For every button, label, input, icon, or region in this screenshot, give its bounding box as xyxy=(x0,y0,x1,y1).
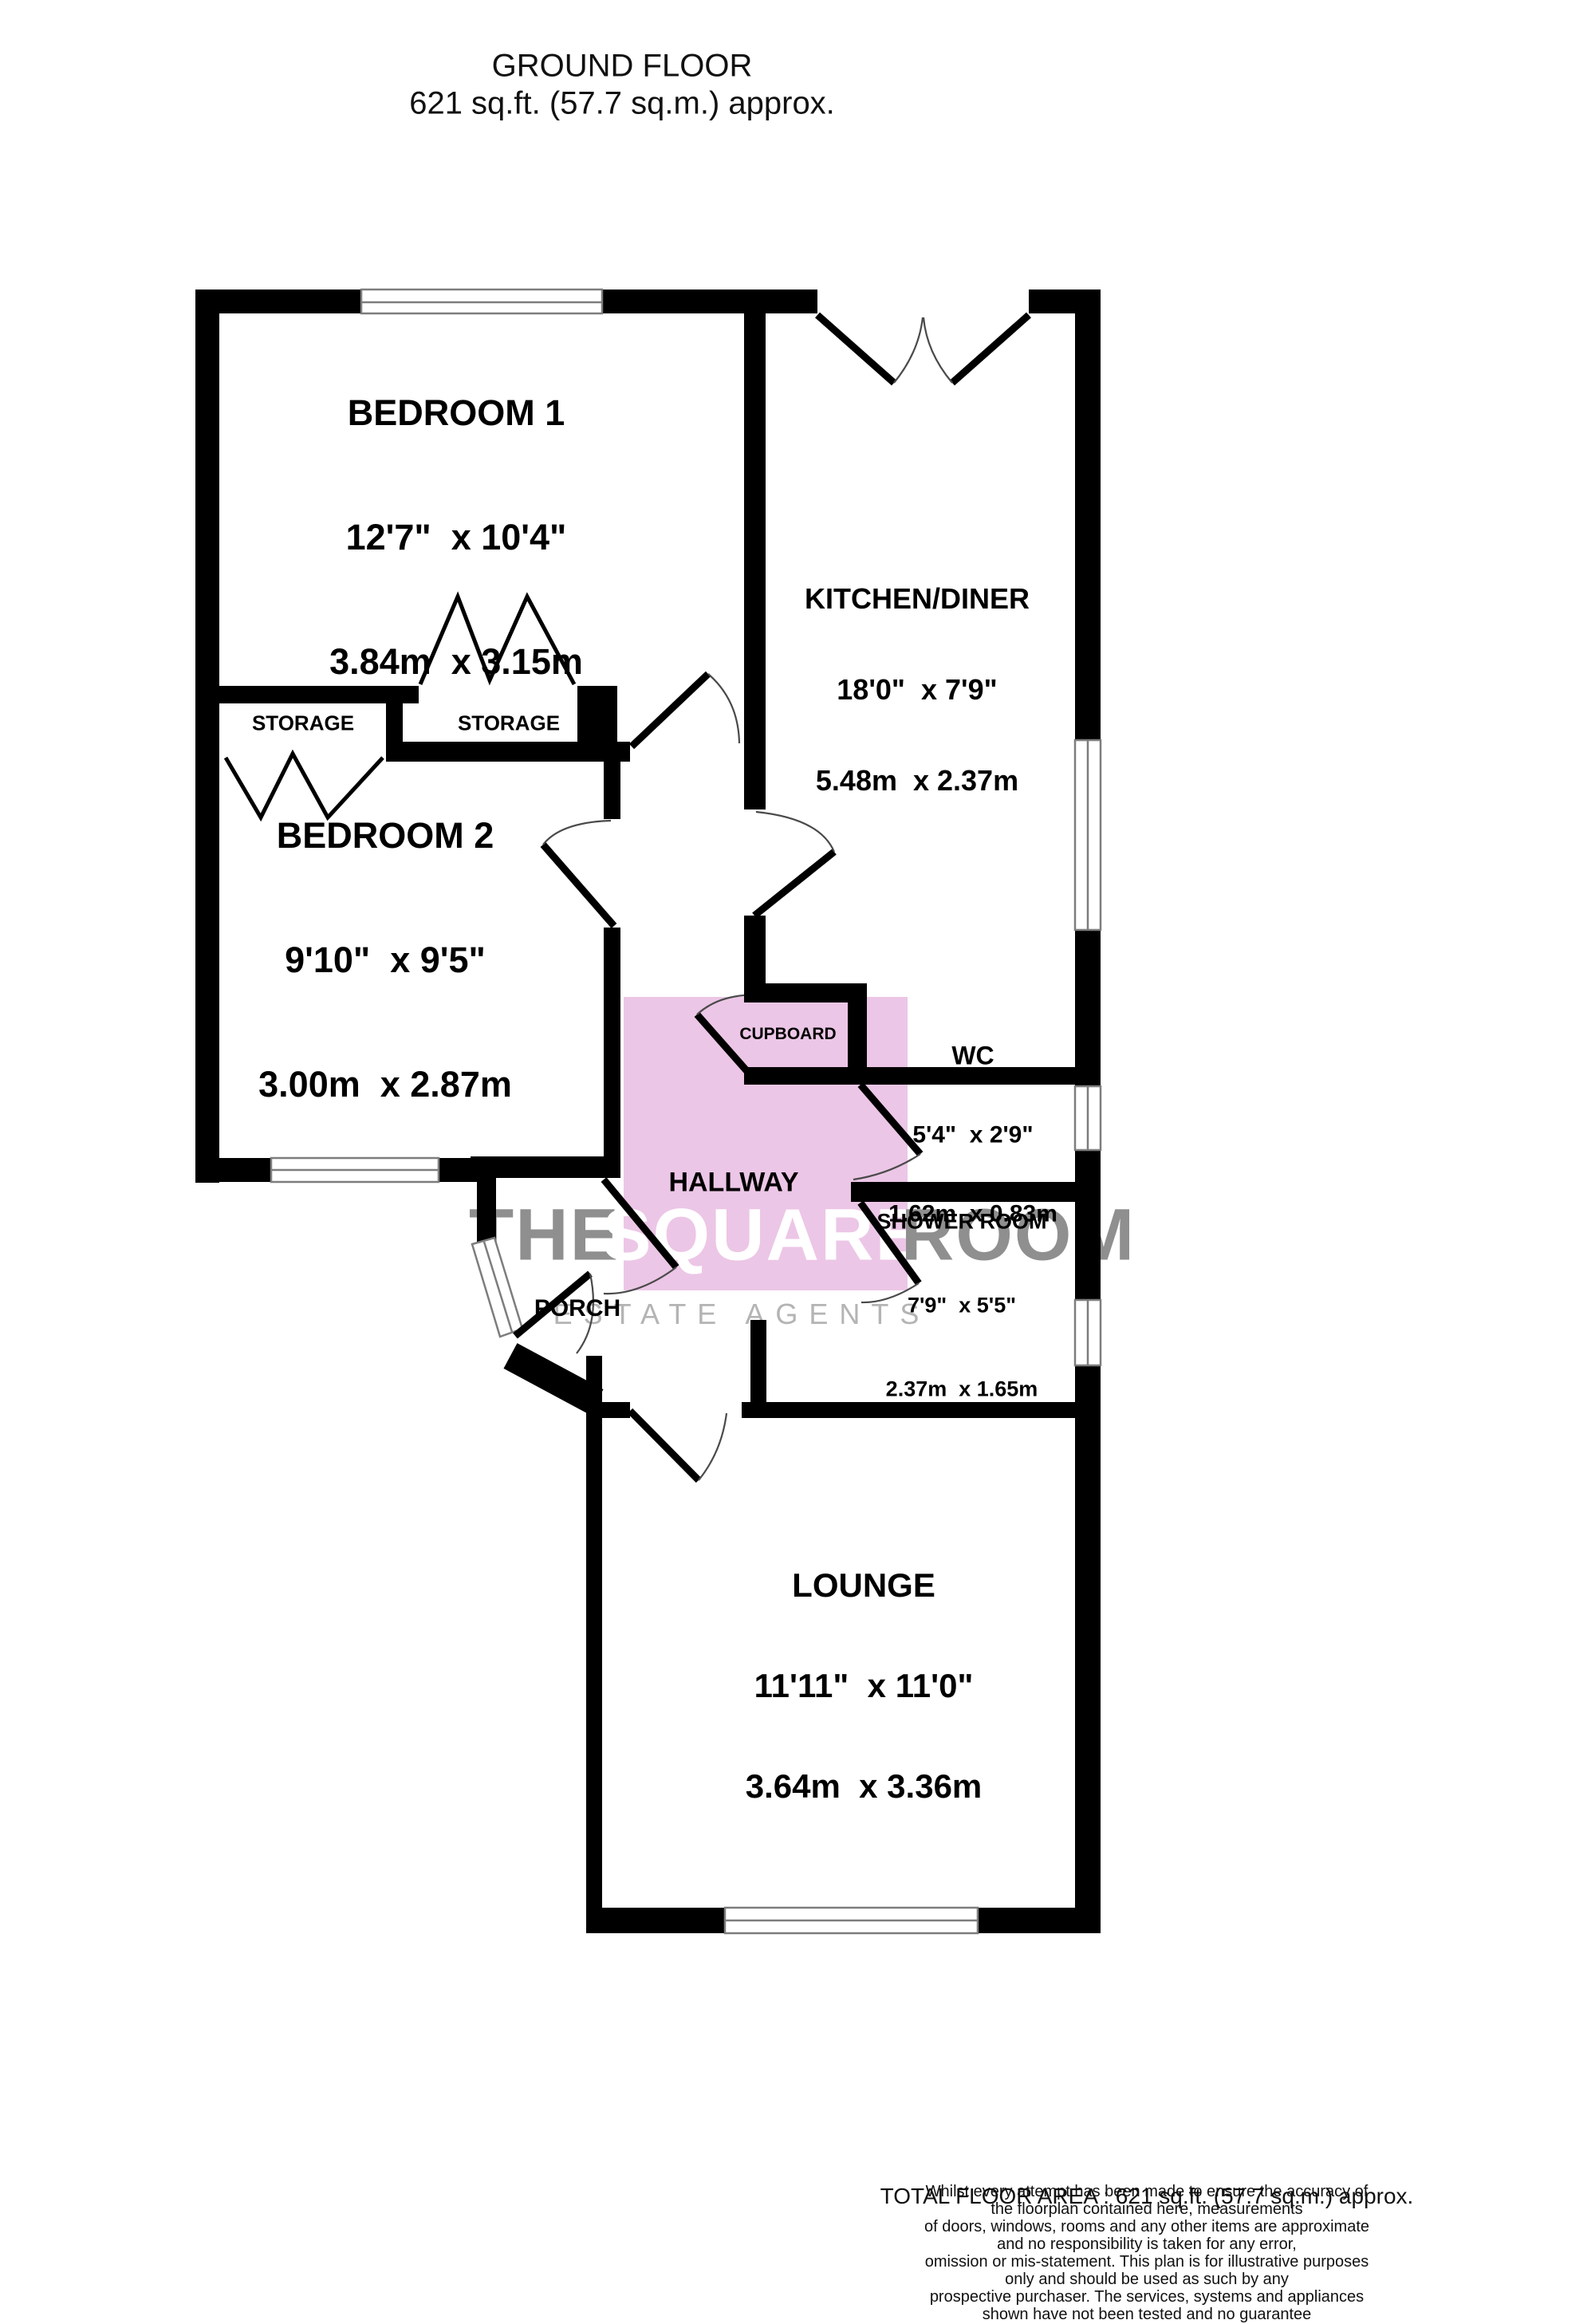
room-dims-metric: 3.00m x 2.87m xyxy=(258,1064,512,1105)
room-label-cupboard: CUPBOARD xyxy=(739,1025,836,1044)
disclaimer-line: Whilst every attempt has been made to en… xyxy=(923,2183,1371,2218)
room-label-hallway: HALLWAY xyxy=(668,1168,798,1199)
room-label-storage-1: STORAGE xyxy=(252,711,354,736)
room-label-bedroom2: BEDROOM 2 9'10" x 9'5" 3.00m x 2.87m xyxy=(258,732,512,1188)
room-dims-imperial: 11'11" x 11'0" xyxy=(746,1669,983,1703)
room-name: LOUNGE xyxy=(746,1569,983,1602)
room-dims-metric: 3.64m x 3.36m xyxy=(746,1770,983,1803)
room-dims-imperial: 7'9" x 5'5" xyxy=(877,1292,1047,1320)
disclaimer-line: of doors, windows, rooms and any other i… xyxy=(923,2218,1371,2253)
room-label-lounge: LOUNGE 11'11" x 11'0" 3.64m x 3.36m xyxy=(746,1502,983,1870)
floorplan-page: GROUND FLOOR 621 sq.ft. (57.7 sq.m.) app… xyxy=(0,0,1595,2324)
room-name: BEDROOM 2 xyxy=(258,815,512,857)
room-dims-imperial: 12'7" x 10'4" xyxy=(329,517,583,558)
disclaimer-line: prospective purchaser. The services, sys… xyxy=(923,2288,1371,2323)
room-label-porch: PORCH xyxy=(534,1295,620,1322)
floorplan-drawing xyxy=(0,0,1595,2324)
room-dims-metric: 5.48m x 2.37m xyxy=(805,766,1030,796)
room-dims-imperial: 5'4" x 2'9" xyxy=(888,1122,1057,1148)
room-label-storage-2: STORAGE xyxy=(458,711,560,736)
room-label-kitchen: KITCHEN/DINER 18'0" x 7'9" 5.48m x 2.37m xyxy=(805,523,1030,857)
room-name: BEDROOM 1 xyxy=(329,392,583,434)
room-dims-imperial: 18'0" x 7'9" xyxy=(805,675,1030,705)
disclaimer: Whilst every attempt has been made to en… xyxy=(923,2183,1371,2324)
disclaimer-line: omission or mis-statement. This plan is … xyxy=(923,2253,1371,2288)
room-dims-metric: 2.37m x 1.65m xyxy=(877,1376,1047,1404)
room-name: WC xyxy=(888,1043,1057,1069)
room-dims-imperial: 9'10" x 9'5" xyxy=(258,939,512,981)
room-dims-metric: 3.84m x 3.15m xyxy=(329,641,583,683)
room-label-bedroom1: BEDROOM 1 12'7" x 10'4" 3.84m x 3.15m xyxy=(329,309,583,766)
room-label-shower-room: SHOWER ROOM 7'9" x 5'5" 2.37m x 1.65m xyxy=(877,1152,1047,1459)
room-name: KITCHEN/DINER xyxy=(805,584,1030,614)
room-name: SHOWER ROOM xyxy=(877,1208,1047,1236)
